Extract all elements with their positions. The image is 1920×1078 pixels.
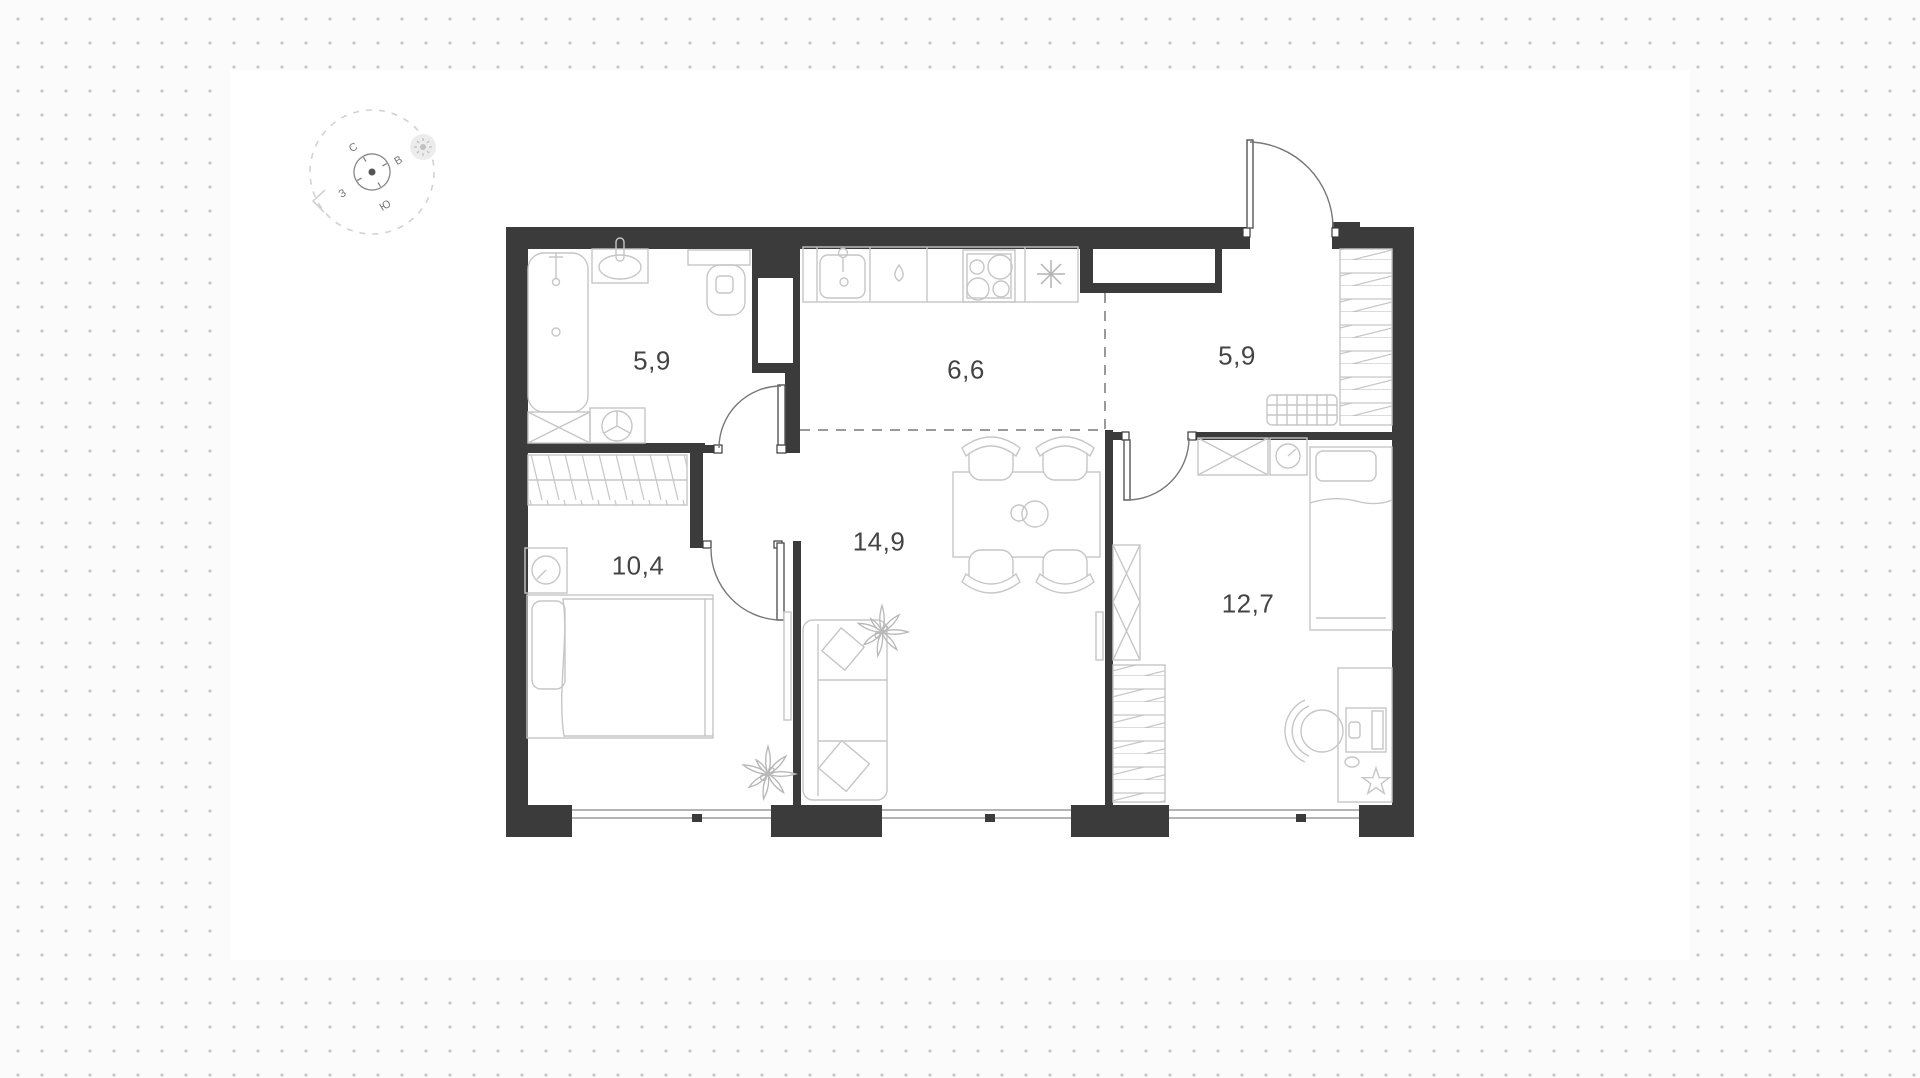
window-mullion <box>985 814 995 822</box>
sofa-icon <box>803 620 887 800</box>
room-area-label-bedroom: 10,4 <box>612 551 665 582</box>
plant-icon <box>742 746 795 799</box>
compass-icon: С В Ю З <box>310 110 436 234</box>
chair-icon <box>1036 550 1094 593</box>
bathroom-door-icon[interactable] <box>714 385 786 453</box>
hall-wardrobe-icon <box>1340 249 1392 425</box>
window-mullion <box>1296 814 1306 822</box>
tv-icon <box>784 612 791 720</box>
room-area-label-kitchen: 6,6 <box>947 355 985 386</box>
office-chair-icon <box>1285 700 1343 762</box>
bedroom-wardrobe-icon <box>528 455 687 505</box>
compass-north-label: С <box>347 141 360 155</box>
bathtub-icon <box>528 252 588 412</box>
wardrobe-icon <box>1198 438 1268 475</box>
dining-table-icon <box>953 472 1100 557</box>
floor-plan-page: { "document": { "type": "apartment-floor… <box>0 0 1920 1078</box>
tap-drop-icon <box>895 265 903 281</box>
entrance-door-icon[interactable] <box>1243 140 1339 237</box>
compass-rotation-arrow-icon <box>313 190 325 212</box>
bathroom-fixtures <box>528 238 750 443</box>
star-icon <box>1363 768 1390 793</box>
compass-east-label: В <box>392 154 404 168</box>
mouse-icon <box>1345 757 1359 767</box>
tv-icon <box>1096 612 1103 660</box>
tall-wardrobe-icon <box>1113 545 1165 802</box>
room-area-label-living-room: 14,9 <box>853 527 906 558</box>
compass-west-label: З <box>337 187 349 201</box>
kitchen-sink-icon <box>820 249 865 299</box>
monitor-icon <box>1346 708 1386 752</box>
chair-icon <box>962 437 1020 480</box>
shower-drain-icon <box>590 408 645 443</box>
windows <box>572 810 1359 822</box>
bedroom-2-furniture <box>1113 438 1392 802</box>
compass-center-dot <box>369 169 376 176</box>
bedroom-2-door-icon[interactable] <box>1122 432 1196 500</box>
fridge-asterisk-icon <box>1037 260 1065 288</box>
chair-icon <box>1036 437 1094 480</box>
stove-icon <box>963 250 1015 302</box>
radiator-grid-icon <box>1267 395 1337 425</box>
dresser-icon <box>1270 438 1307 475</box>
chair-icon <box>962 550 1020 593</box>
outer-walls <box>506 222 1414 837</box>
bed-icon <box>527 595 713 738</box>
inner-walls <box>528 247 1392 805</box>
washing-machine-icon <box>528 412 590 443</box>
window-mullion <box>692 814 702 822</box>
bed-icon <box>1310 447 1392 630</box>
living-room-furniture <box>803 437 1103 800</box>
desk-icon <box>1338 668 1392 802</box>
floor-plan-drawing: С В Ю З <box>0 0 1920 1078</box>
bedroom-door-icon[interactable] <box>703 541 784 620</box>
plant-icon <box>857 606 908 657</box>
toilet-icon <box>688 250 750 315</box>
kitchen-fixtures <box>803 247 1078 302</box>
room-area-label-bathroom: 5,9 <box>633 346 671 377</box>
hall-fixtures <box>1267 249 1392 425</box>
nightstand-icon <box>525 548 567 593</box>
room-area-label-bedroom-2: 12,7 <box>1222 589 1275 620</box>
compass-south-label: Ю <box>378 198 394 214</box>
bedroom-furniture <box>525 455 796 799</box>
room-area-label-entrance-hall: 5,9 <box>1218 341 1256 372</box>
